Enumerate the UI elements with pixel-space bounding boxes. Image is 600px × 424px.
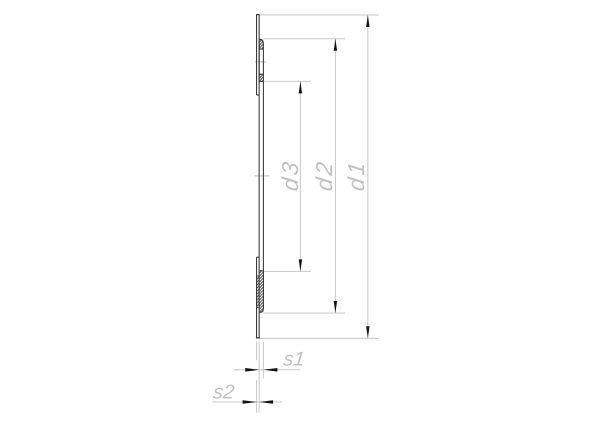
svg-text:s2: s2	[212, 382, 236, 404]
svg-text:d1: d1	[343, 158, 369, 193]
svg-text:d3: d3	[277, 158, 303, 193]
svg-text:d2: d2	[311, 158, 337, 193]
svg-text:s1: s1	[282, 349, 306, 371]
